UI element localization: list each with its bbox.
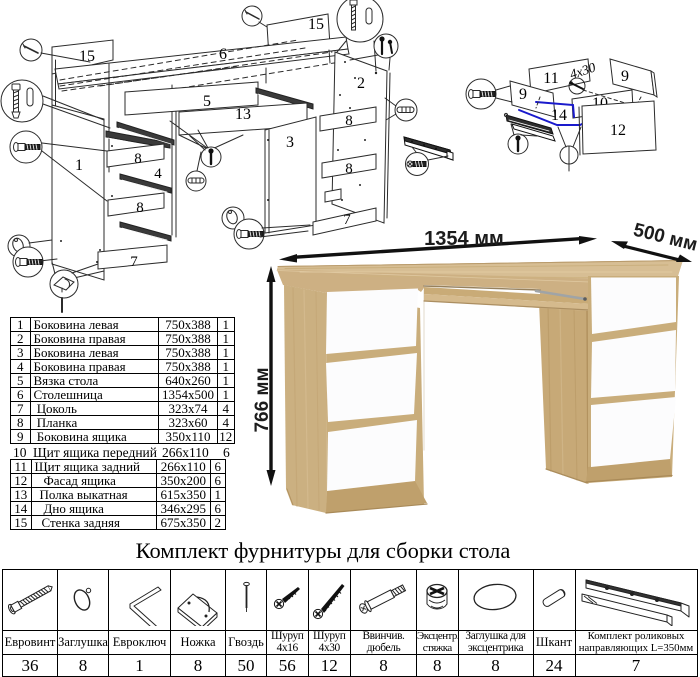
svg-text:1: 1 xyxy=(75,157,83,174)
svg-text:13: 13 xyxy=(235,106,251,123)
svg-text:7: 7 xyxy=(343,212,351,228)
svg-text:15: 15 xyxy=(79,48,95,65)
svg-text:5: 5 xyxy=(203,93,211,110)
svg-text:2: 2 xyxy=(357,75,365,92)
svg-text:11: 11 xyxy=(543,70,558,87)
svg-text:766 мм: 766 мм xyxy=(252,367,273,432)
svg-text:9: 9 xyxy=(519,86,527,103)
svg-text:8: 8 xyxy=(345,113,353,129)
svg-text:15: 15 xyxy=(308,16,324,33)
svg-text:9: 9 xyxy=(621,68,629,85)
svg-text:1354 мм: 1354 мм xyxy=(424,228,504,250)
svg-text:8: 8 xyxy=(345,161,353,177)
svg-text:14: 14 xyxy=(551,107,567,124)
svg-text:8: 8 xyxy=(134,151,142,167)
svg-text:7: 7 xyxy=(130,254,138,270)
svg-text:4: 4 xyxy=(154,166,162,182)
svg-text:8: 8 xyxy=(136,200,144,216)
svg-text:12: 12 xyxy=(610,122,626,139)
svg-text:3: 3 xyxy=(286,134,294,151)
